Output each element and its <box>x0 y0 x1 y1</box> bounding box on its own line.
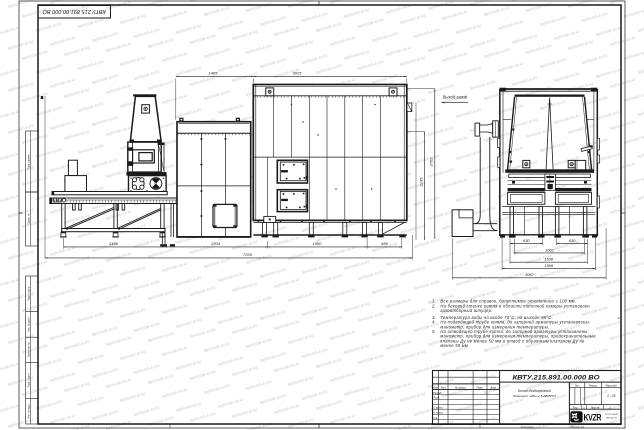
svg-text:teplostab-kv.kz: teplostab-kv.kz <box>497 271 524 283</box>
svg-text:teplostab-kv.kz: teplostab-kv.kz <box>609 119 636 131</box>
svg-text:teplostab-kv.kz: teplostab-kv.kz <box>35 147 62 159</box>
svg-text:teplostab-kv.kz: teplostab-kv.kz <box>511 411 538 423</box>
svg-text:7200: 7200 <box>243 252 253 257</box>
svg-text:teplostab-kv.kz: teplostab-kv.kz <box>525 1 552 13</box>
svg-text:КВТУ.215.891.00.000 ВО: КВТУ.215.891.00.000 ВО <box>513 375 600 382</box>
svg-text:teplostab-kv.kz: teplostab-kv.kz <box>637 399 644 411</box>
svg-text:teplostab-kv.kz: teplostab-kv.kz <box>287 249 314 261</box>
svg-text:teplostab-kv.kz: teplostab-kv.kz <box>7 81 34 93</box>
svg-text:teplostab-kv.kz: teplostab-kv.kz <box>175 275 202 287</box>
svg-text:teplostab-kv.kz: teplostab-kv.kz <box>287 375 314 387</box>
svg-text:teplostab-kv.kz: teplostab-kv.kz <box>623 343 644 355</box>
svg-text:teplostab-kv.kz: teplostab-kv.kz <box>0 25 20 37</box>
svg-text:teplostab-kv.kz: teplostab-kv.kz <box>105 335 132 347</box>
svg-text:teplostab-kv.kz: teplostab-kv.kz <box>133 363 160 375</box>
svg-text:teplostab-kv.kz: teplostab-kv.kz <box>217 355 244 367</box>
svg-text:teplostab-kv.kz: teplostab-kv.kz <box>105 41 132 53</box>
svg-text:Котел Водогрейный: Котел Водогрейный <box>518 389 551 393</box>
svg-text:teplostab-kv.kz: teplostab-kv.kz <box>399 391 426 403</box>
svg-text:teplostab-kv.kz: teplostab-kv.kz <box>63 45 90 57</box>
svg-text:А: А <box>618 316 620 320</box>
svg-text:teplostab-kv.kz: teplostab-kv.kz <box>245 421 272 430</box>
svg-text:teplostab-kv.kz: teplostab-kv.kz <box>273 277 300 289</box>
svg-text:teplostab-kv.kz: teplostab-kv.kz <box>371 325 398 337</box>
svg-text:teplostab-kv.kz: teplostab-kv.kz <box>595 361 622 373</box>
svg-text:teplostab-kv.kz: teplostab-kv.kz <box>595 235 622 247</box>
svg-text:teplostab-kv.kz: teplostab-kv.kz <box>623 7 644 19</box>
svg-text:teplostab-kv.kz: teplostab-kv.kz <box>21 385 48 397</box>
svg-text:teplostab-kv.kz: teplostab-kv.kz <box>21 133 48 145</box>
svg-text:teplostab-kv.kz: teplostab-kv.kz <box>133 27 160 39</box>
svg-text:teplostab-kv.kz: teplostab-kv.kz <box>147 331 174 343</box>
svg-text:teplostab-kv.kz: teplostab-kv.kz <box>511 0 538 3</box>
svg-text:teplostab-kv.kz: teplostab-kv.kz <box>231 365 258 377</box>
svg-text:teplostab-kv.kz: teplostab-kv.kz <box>0 277 20 289</box>
svg-text:teplostab-kv.kz: teplostab-kv.kz <box>77 395 104 407</box>
svg-text:teplostab-kv.kz: teplostab-kv.kz <box>637 357 644 369</box>
svg-text:teplostab-kv.kz: teplostab-kv.kz <box>273 403 300 415</box>
svg-text:teplostab-kv.kz: teplostab-kv.kz <box>245 1 272 13</box>
svg-text:Масштаб: Масштаб <box>606 384 618 388</box>
svg-text:teplostab-kv.kz: teplostab-kv.kz <box>427 125 454 137</box>
svg-text:teplostab-kv.kz: teplostab-kv.kz <box>21 217 48 229</box>
svg-text:teplostab-kv.kz: teplostab-kv.kz <box>245 43 272 55</box>
svg-text:teplostab-kv.kz: teplostab-kv.kz <box>203 257 230 269</box>
svg-text:teplostab-kv.kz: teplostab-kv.kz <box>413 153 440 165</box>
svg-text:teplostab-kv.kz: teplostab-kv.kz <box>259 57 286 69</box>
svg-text:Масса: Масса <box>589 384 597 388</box>
svg-text:teplostab-kv.kz: teplostab-kv.kz <box>623 217 644 229</box>
svg-text:teplostab-kv.kz: teplostab-kv.kz <box>399 223 426 235</box>
svg-text:teplostab-kv.kz: teplostab-kv.kz <box>539 351 566 363</box>
svg-text:teplostab-kv.kz: teplostab-kv.kz <box>147 37 174 49</box>
svg-text:teplostab-kv.kz: teplostab-kv.kz <box>91 115 118 127</box>
svg-text:teplostab-kv.kz: teplostab-kv.kz <box>259 15 286 27</box>
svg-text:1: 1 <box>583 405 585 409</box>
svg-text:teplostab-kv.kz: teplostab-kv.kz <box>609 245 636 257</box>
svg-text:Подп.: Подп. <box>477 386 484 389</box>
svg-text:teplostab-kv.kz: teplostab-kv.kz <box>7 249 34 261</box>
svg-text:teplostab-kv.kz: teplostab-kv.kz <box>301 11 328 23</box>
svg-text:teplostab-kv.kz: teplostab-kv.kz <box>91 325 118 337</box>
svg-text:Изм.: Изм. <box>433 386 439 389</box>
svg-text:teplostab-kv.kz: teplostab-kv.kz <box>637 147 644 159</box>
svg-text:teplostab-kv.kz: teplostab-kv.kz <box>427 209 454 221</box>
svg-text:teplostab-kv.kz: teplostab-kv.kz <box>441 9 468 21</box>
svg-text:Т. контр.: Т. контр. <box>433 406 443 409</box>
svg-text:teplostab-kv.kz: teplostab-kv.kz <box>21 175 48 187</box>
svg-text:teplostab-kv.kz: teplostab-kv.kz <box>497 19 524 31</box>
svg-text:teplostab-kv.kz: teplostab-kv.kz <box>553 29 580 41</box>
svg-text:teplostab-kv.kz: teplostab-kv.kz <box>469 163 496 175</box>
svg-text:teplostab-kv.kz: teplostab-kv.kz <box>637 105 644 117</box>
svg-text:teplostab-kv.kz: teplostab-kv.kz <box>133 321 160 333</box>
svg-text:teplostab-kv.kz: teplostab-kv.kz <box>231 407 258 419</box>
svg-text:teplostab-kv.kz: teplostab-kv.kz <box>49 119 76 131</box>
svg-text:teplostab-kv.kz: teplostab-kv.kz <box>217 19 244 31</box>
svg-text:teplostab-kv.kz: teplostab-kv.kz <box>623 175 644 187</box>
svg-text:teplostab-kv.kz: teplostab-kv.kz <box>21 343 48 355</box>
svg-text:teplostab-kv.kz: teplostab-kv.kz <box>581 263 608 275</box>
svg-text:teplostab-kv.kz: teplostab-kv.kz <box>133 279 160 291</box>
svg-text:teplostab-kv.kz: teplostab-kv.kz <box>49 77 76 89</box>
svg-text:teplostab-kv.kz: teplostab-kv.kz <box>77 311 104 323</box>
svg-text:teplostab-kv.kz: teplostab-kv.kz <box>371 73 398 85</box>
svg-text:teplostab-kv.kz: teplostab-kv.kz <box>49 245 76 257</box>
svg-text:2135: 2135 <box>418 177 423 188</box>
svg-text:teplostab-kv.kz: teplostab-kv.kz <box>357 59 384 71</box>
svg-text:Выход газов: Выход газов <box>443 94 468 99</box>
svg-text:Пров.: Пров. <box>433 397 440 400</box>
svg-text:teplostab-kv.kz: teplostab-kv.kz <box>259 267 286 279</box>
svg-text:Heatexpert «КВт-2,5-ДВ(ВПУ): Heatexpert «КВт-2,5-ДВ(ВПУ) <box>513 394 556 398</box>
svg-text:teplostab-kv.kz: teplostab-kv.kz <box>315 357 342 369</box>
svg-text:1538: 1538 <box>544 257 554 262</box>
svg-text:2.: 2. <box>431 303 435 308</box>
svg-text:teplostab-kv.kz: teplostab-kv.kz <box>301 53 328 65</box>
svg-text:teplostab-kv.kz: teplostab-kv.kz <box>49 329 76 341</box>
svg-text:teplostab-kv.kz: teplostab-kv.kz <box>315 273 342 285</box>
svg-text:teplostab-kv.kz: teplostab-kv.kz <box>21 259 48 271</box>
svg-text:teplostab-kv.kz: teplostab-kv.kz <box>329 35 356 47</box>
svg-text:teplostab-kv.kz: teplostab-kv.kz <box>287 39 314 51</box>
svg-text:teplostab-kv.kz: teplostab-kv.kz <box>581 347 608 359</box>
svg-text:teplostab-kv.kz: teplostab-kv.kz <box>483 89 510 101</box>
svg-text:teplostab-kv.kz: teplostab-kv.kz <box>609 371 636 383</box>
svg-text:teplostab-kv.kz: teplostab-kv.kz <box>231 29 258 41</box>
svg-text:teplostab-kv.kz: teplostab-kv.kz <box>399 265 426 277</box>
svg-text:teplostab-kv.kz: teplostab-kv.kz <box>371 283 398 295</box>
svg-text:teplostab-kv.kz: teplostab-kv.kz <box>147 373 174 385</box>
svg-text:teplostab-kv.kz: teplostab-kv.kz <box>203 299 230 311</box>
svg-text:Справ. №: Справ. № <box>28 213 31 224</box>
svg-text:teplostab-kv.kz: teplostab-kv.kz <box>91 157 118 169</box>
svg-text:teplostab-kv.kz: teplostab-kv.kz <box>567 123 594 135</box>
svg-text:Копировал: Копировал <box>521 425 534 429</box>
svg-text:teplostab-kv.kz: teplostab-kv.kz <box>91 409 118 421</box>
svg-text:teplostab-kv.kz: teplostab-kv.kz <box>623 133 644 145</box>
svg-text:teplostab-kv.kz: teplostab-kv.kz <box>77 353 104 365</box>
svg-text:teplostab-kv.kz: teplostab-kv.kz <box>273 25 300 37</box>
svg-text:teplostab-kv.kz: teplostab-kv.kz <box>385 339 412 351</box>
svg-text:teplostab-kv.kz: teplostab-kv.kz <box>189 369 216 381</box>
svg-text:teplostab-kv.kz: teplostab-kv.kz <box>595 319 622 331</box>
svg-text:teplostab-kv.kz: teplostab-kv.kz <box>413 195 440 207</box>
svg-text:teplostab-kv.kz: teplostab-kv.kz <box>497 145 524 157</box>
svg-text:teplostab-kv.kz: teplostab-kv.kz <box>623 91 644 103</box>
svg-text:Лист: Лист <box>573 405 579 409</box>
svg-text:teplostab-kv.kz: teplostab-kv.kz <box>553 239 580 251</box>
svg-text:2034: 2034 <box>210 241 221 246</box>
svg-text:teplostab-kv.kz: teplostab-kv.kz <box>231 71 258 83</box>
svg-text:teplostab-kv.kz: teplostab-kv.kz <box>259 309 286 321</box>
svg-text:teplostab-kv.kz: teplostab-kv.kz <box>623 259 644 271</box>
svg-text:teplostab-kv.kz: teplostab-kv.kz <box>175 401 202 413</box>
svg-text:teplostab-kv.kz: teplostab-kv.kz <box>623 301 644 313</box>
svg-text:teplostab-kv.kz: teplostab-kv.kz <box>385 381 412 393</box>
svg-text:685: 685 <box>381 241 388 246</box>
svg-text:teplostab-kv.kz: teplostab-kv.kz <box>399 55 426 67</box>
svg-text:teplostab-kv.kz: teplostab-kv.kz <box>371 409 398 421</box>
svg-text:teplostab-kv.kz: teplostab-kv.kz <box>189 327 216 339</box>
svg-text:teplostab-kv.kz: teplostab-kv.kz <box>217 61 244 73</box>
svg-text:teplostab-kv.kz: teplostab-kv.kz <box>427 83 454 95</box>
svg-text:Формат А2: Формат А2 <box>571 425 585 429</box>
svg-text:teplostab-kv.kz: teplostab-kv.kz <box>357 17 384 29</box>
svg-text:teplostab-kv.kz: teplostab-kv.kz <box>175 107 202 119</box>
svg-text:teplostab-kv.kz: teplostab-kv.kz <box>259 393 286 405</box>
svg-text:teplostab-kv.kz: teplostab-kv.kz <box>49 35 76 47</box>
svg-text:teplostab-kv.kz: teplostab-kv.kz <box>105 251 132 263</box>
svg-text:teplostab-kv.kz: teplostab-kv.kz <box>357 395 384 407</box>
svg-text:teplostab-kv.kz: teplostab-kv.kz <box>413 321 440 333</box>
svg-text:teplostab-kv.kz: teplostab-kv.kz <box>609 161 636 173</box>
svg-text:teplostab-kv.kz: teplostab-kv.kz <box>469 247 496 259</box>
svg-text:teplostab-kv.kz: teplostab-kv.kz <box>0 319 20 331</box>
svg-text:teplostab-kv.kz: teplostab-kv.kz <box>7 39 34 51</box>
svg-text:teplostab-kv.kz: teplostab-kv.kz <box>0 109 20 121</box>
svg-text:teplostab-kv.kz: teplostab-kv.kz <box>105 125 132 137</box>
svg-text:teplostab-kv.kz: teplostab-kv.kz <box>161 345 188 357</box>
svg-text:teplostab-kv.kz: teplostab-kv.kz <box>63 87 90 99</box>
svg-text:ЗАВОД РТИ: ЗАВОД РТИ <box>606 417 618 420</box>
svg-text:teplostab-kv.kz: teplostab-kv.kz <box>581 137 608 149</box>
svg-text:teplostab-kv.kz: teplostab-kv.kz <box>427 41 454 53</box>
svg-text:teplostab-kv.kz: teplostab-kv.kz <box>35 273 62 285</box>
svg-text:5.: 5. <box>432 329 435 334</box>
svg-text:teplostab-kv.kz: teplostab-kv.kz <box>441 177 468 189</box>
svg-text:teplostab-kv.kz: teplostab-kv.kz <box>63 255 90 267</box>
svg-text:teplostab-kv.kz: teplostab-kv.kz <box>637 63 644 75</box>
svg-text:teplostab-kv.kz: teplostab-kv.kz <box>497 103 524 115</box>
svg-text:teplostab-kv.kz: teplostab-kv.kz <box>609 287 636 299</box>
svg-text:teplostab-kv.kz: teplostab-kv.kz <box>189 411 216 423</box>
svg-text:teplostab-kv.kz: teplostab-kv.kz <box>63 381 90 393</box>
svg-text:teplostab-kv.kz: teplostab-kv.kz <box>329 371 356 383</box>
svg-text:teplostab-kv.kz: teplostab-kv.kz <box>63 129 90 141</box>
svg-text:teplostab-kv.kz: teplostab-kv.kz <box>217 397 244 409</box>
svg-text:teplostab-kv.kz: teplostab-kv.kz <box>357 353 384 365</box>
svg-text:teplostab-kv.kz: teplostab-kv.kz <box>637 189 644 201</box>
svg-text:teplostab-kv.kz: teplostab-kv.kz <box>203 383 230 395</box>
svg-text:teplostab-kv.kz: teplostab-kv.kz <box>0 193 20 205</box>
svg-text:teplostab-kv.kz: teplostab-kv.kz <box>35 315 62 327</box>
svg-text:teplostab-kv.kz: teplostab-kv.kz <box>287 291 314 303</box>
svg-text:teplostab-kv.kz: teplostab-kv.kz <box>637 231 644 243</box>
svg-text:teplostab-kv.kz: teplostab-kv.kz <box>105 209 132 221</box>
svg-text:Инв. № дубл.: Инв. № дубл. <box>28 317 31 332</box>
svg-text:Дата: Дата <box>491 386 497 389</box>
svg-text:1906: 1906 <box>544 263 554 268</box>
svg-text:teplostab-kv.kz: teplostab-kv.kz <box>567 249 594 261</box>
svg-text:teplostab-kv.kz: teplostab-kv.kz <box>0 151 20 163</box>
svg-text:teplostab-kv.kz: teplostab-kv.kz <box>497 61 524 73</box>
svg-text:teplostab-kv.kz: teplostab-kv.kz <box>119 13 146 25</box>
svg-text:teplostab-kv.kz: teplostab-kv.kz <box>133 69 160 81</box>
svg-text:teplostab-kv.kz: teplostab-kv.kz <box>343 259 370 271</box>
svg-text:teplostab-kv.kz: teplostab-kv.kz <box>595 25 622 37</box>
svg-text:teplostab-kv.kz: teplostab-kv.kz <box>119 55 146 67</box>
svg-text:teplostab-kv.kz: teplostab-kv.kz <box>315 21 342 33</box>
svg-text:teplostab-kv.kz: teplostab-kv.kz <box>273 319 300 331</box>
svg-text:teplostab-kv.kz: teplostab-kv.kz <box>161 261 188 273</box>
svg-text:teplostab-kv.kz: teplostab-kv.kz <box>511 33 538 45</box>
svg-text:teplostab-kv.kz: teplostab-kv.kz <box>455 191 482 203</box>
svg-text:teplostab-kv.kz: teplostab-kv.kz <box>455 65 482 77</box>
svg-text:teplostab-kv.kz: teplostab-kv.kz <box>189 33 216 45</box>
svg-text:teplostab-kv.kz: teplostab-kv.kz <box>203 47 230 59</box>
svg-text:teplostab-kv.kz: teplostab-kv.kz <box>595 277 622 289</box>
svg-text:Разраб.: Разраб. <box>433 392 442 395</box>
svg-text:teplostab-kv.kz: teplostab-kv.kz <box>581 53 608 65</box>
svg-text:teplostab-kv.kz: teplostab-kv.kz <box>385 45 412 57</box>
svg-text:teplostab-kv.kz: teplostab-kv.kz <box>119 391 146 403</box>
svg-text:teplostab-kv.kz: teplostab-kv.kz <box>455 275 482 287</box>
svg-text:Лист: Лист <box>441 386 447 389</box>
svg-text:teplostab-kv.kz: teplostab-kv.kz <box>483 5 510 17</box>
svg-text:teplostab-kv.kz: teplostab-kv.kz <box>455 149 482 161</box>
svg-text:teplostab-kv.kz: teplostab-kv.kz <box>329 329 356 341</box>
svg-text:teplostab-kv.kz: teplostab-kv.kz <box>21 49 48 61</box>
svg-text:teplostab-kv.kz: teplostab-kv.kz <box>175 65 202 77</box>
svg-text:teplostab-kv.kz: teplostab-kv.kz <box>539 57 566 69</box>
svg-text:teplostab-kv.kz: teplostab-kv.kz <box>217 313 244 325</box>
svg-text:teplostab-kv.kz: teplostab-kv.kz <box>343 343 370 355</box>
svg-text:KVZR: KVZR <box>584 413 602 424</box>
svg-text:teplostab-kv.kz: teplostab-kv.kz <box>189 0 216 3</box>
svg-text:teplostab-kv.kz: teplostab-kv.kz <box>245 379 272 391</box>
svg-text:1950: 1950 <box>313 241 323 246</box>
svg-text:teplostab-kv.kz: teplostab-kv.kz <box>175 23 202 35</box>
svg-text:teplostab-kv.kz: teplostab-kv.kz <box>483 47 510 59</box>
svg-text:Инв. № подл.: Инв. № подл. <box>28 403 31 418</box>
svg-text:teplostab-kv.kz: teplostab-kv.kz <box>539 99 566 111</box>
svg-text:teplostab-kv.kz: teplostab-kv.kz <box>441 51 468 63</box>
svg-text:teplostab-kv.kz: teplostab-kv.kz <box>77 17 104 29</box>
svg-text:teplostab-kv.kz: teplostab-kv.kz <box>581 221 608 233</box>
svg-text:teplostab-kv.kz: teplostab-kv.kz <box>119 265 146 277</box>
svg-text:teplostab-kv.kz: teplostab-kv.kz <box>511 117 538 129</box>
svg-text:teplostab-kv.kz: teplostab-kv.kz <box>455 23 482 35</box>
svg-text:teplostab-kv.kz: teplostab-kv.kz <box>553 281 580 293</box>
svg-text:Подп. и дата: Подп. и дата <box>28 286 31 301</box>
svg-text:teplostab-kv.kz: teplostab-kv.kz <box>7 123 34 135</box>
svg-text:teplostab-kv.kz: teplostab-kv.kz <box>595 67 622 79</box>
svg-text:teplostab-kv.kz: teplostab-kv.kz <box>231 323 258 335</box>
svg-text:КОТЕЛЬНЫЙ: КОТЕЛЬНЫЙ <box>605 413 618 416</box>
svg-text:teplostab-kv.kz: teplostab-kv.kz <box>343 385 370 397</box>
svg-text:1460: 1460 <box>109 241 119 246</box>
svg-text:teplostab-kv.kz: teplostab-kv.kz <box>77 269 104 281</box>
svg-text:teplostab-kv.kz: teplostab-kv.kz <box>35 357 62 369</box>
svg-text:teplostab-kv.kz: teplostab-kv.kz <box>343 7 370 19</box>
svg-text:teplostab-kv.kz: teplostab-kv.kz <box>539 15 566 27</box>
svg-text:Перв. примен.: Перв. примен. <box>28 153 31 169</box>
svg-text:teplostab-kv.kz: teplostab-kv.kz <box>357 311 384 323</box>
svg-text:teplostab-kv.kz: teplostab-kv.kz <box>637 315 644 327</box>
svg-text:teplostab-kv.kz: teplostab-kv.kz <box>567 39 594 51</box>
svg-text:teplostab-kv.kz: teplostab-kv.kz <box>217 103 244 115</box>
svg-text:1062: 1062 <box>545 247 555 252</box>
svg-text:teplostab-kv.kz: teplostab-kv.kz <box>189 285 216 297</box>
svg-text:teplostab-kv.kz: teplostab-kv.kz <box>119 307 146 319</box>
svg-text:teplostab-kv.kz: teplostab-kv.kz <box>637 21 644 33</box>
svg-text:teplostab-kv.kz: teplostab-kv.kz <box>119 349 146 361</box>
svg-text:Утв.: Утв. <box>433 417 438 420</box>
svg-text:teplostab-kv.kz: teplostab-kv.kz <box>49 287 76 299</box>
svg-text:teplostab-kv.kz: teplostab-kv.kz <box>609 329 636 341</box>
svg-text:teplostab-kv.kz: teplostab-kv.kz <box>455 359 482 371</box>
svg-text:Листов: Листов <box>591 405 600 409</box>
svg-text:teplostab-kv.kz: teplostab-kv.kz <box>77 143 104 155</box>
svg-text:teplostab-kv.kz: teplostab-kv.kz <box>413 363 440 375</box>
svg-text:teplostab-kv.kz: teplostab-kv.kz <box>567 207 594 219</box>
svg-text:teplostab-kv.kz: teplostab-kv.kz <box>147 289 174 301</box>
svg-text:teplostab-kv.kz: teplostab-kv.kz <box>301 347 328 359</box>
svg-text:teplostab-kv.kz: teplostab-kv.kz <box>217 271 244 283</box>
svg-text:teplostab-kv.kz: teplostab-kv.kz <box>399 307 426 319</box>
svg-text:teplostab-kv.kz: teplostab-kv.kz <box>371 31 398 43</box>
svg-text:1485: 1485 <box>209 71 219 76</box>
svg-text:teplostab-kv.kz: teplostab-kv.kz <box>147 79 174 91</box>
svg-text:teplostab-kv.kz: teplostab-kv.kz <box>49 203 76 215</box>
svg-text:teplostab-kv.kz: teplostab-kv.kz <box>91 367 118 379</box>
svg-text:teplostab-kv.kz: teplostab-kv.kz <box>231 239 258 251</box>
svg-text:1 : 25: 1 : 25 <box>607 394 616 398</box>
svg-text:teplostab-kv.kz: teplostab-kv.kz <box>427 251 454 263</box>
svg-text:teplostab-kv.kz: teplostab-kv.kz <box>161 387 188 399</box>
svg-text:teplostab-kv.kz: teplostab-kv.kz <box>469 79 496 91</box>
svg-text:teplostab-kv.kz: teplostab-kv.kz <box>175 317 202 329</box>
svg-text:Н. контр.: Н. контр. <box>433 412 444 415</box>
svg-text:teplostab-kv.kz: teplostab-kv.kz <box>413 279 440 291</box>
svg-text:3052: 3052 <box>525 272 535 277</box>
svg-text:teplostab-kv.kz: teplostab-kv.kz <box>147 247 174 259</box>
svg-text:teplostab-kv.kz: teplostab-kv.kz <box>413 69 440 81</box>
svg-text:teplostab-kv.kz: teplostab-kv.kz <box>0 67 20 79</box>
svg-text:teplostab-kv.kz: teplostab-kv.kz <box>77 59 104 71</box>
svg-text:teplostab-kv.kz: teplostab-kv.kz <box>245 295 272 307</box>
svg-text:teplostab-kv.kz: teplostab-kv.kz <box>301 305 328 317</box>
svg-text:teplostab-kv.kz: teplostab-kv.kz <box>315 63 342 75</box>
svg-text:teplostab-kv.kz: teplostab-kv.kz <box>49 371 76 383</box>
svg-text:teplostab-kv.kz: teplostab-kv.kz <box>525 43 552 55</box>
svg-text:teplostab-kv.kz: teplostab-kv.kz <box>63 297 90 309</box>
svg-text:teplostab-kv.kz: teplostab-kv.kz <box>35 63 62 75</box>
svg-text:teplostab-kv.kz: teplostab-kv.kz <box>91 283 118 295</box>
svg-text:teplostab-kv.kz: teplostab-kv.kz <box>161 9 188 21</box>
svg-text:teplostab-kv.kz: teplostab-kv.kz <box>35 21 62 33</box>
svg-text:teplostab-kv.kz: teplostab-kv.kz <box>343 49 370 61</box>
svg-text:teplostab-kv.kz: teplostab-kv.kz <box>77 101 104 113</box>
svg-text:teplostab-kv.kz: teplostab-kv.kz <box>245 337 272 349</box>
svg-text:teplostab-kv.kz: teplostab-kv.kz <box>203 341 230 353</box>
svg-text:teplostab-kv.kz: teplostab-kv.kz <box>329 287 356 299</box>
svg-text:teplostab-kv.kz: teplostab-kv.kz <box>161 303 188 315</box>
svg-text:teplostab-kv.kz: teplostab-kv.kz <box>483 257 510 269</box>
svg-text:teplostab-kv.kz: teplostab-kv.kz <box>441 261 468 273</box>
svg-text:Взам. инв. №: Взам. инв. № <box>28 342 31 357</box>
svg-text:teplostab-kv.kz: teplostab-kv.kz <box>399 13 426 25</box>
svg-text:teplostab-kv.kz: teplostab-kv.kz <box>511 285 538 297</box>
svg-text:teplostab-kv.kz: teplostab-kv.kz <box>35 399 62 411</box>
svg-text:4.: 4. <box>432 320 435 325</box>
svg-text:teplostab-kv.kz: teplostab-kv.kz <box>343 301 370 313</box>
svg-text:teplostab-kv.kz: teplostab-kv.kz <box>287 417 314 429</box>
svg-text:teplostab-kv.kz: teplostab-kv.kz <box>455 401 482 413</box>
svg-text:teplostab-kv.kz: teplostab-kv.kz <box>553 113 580 125</box>
svg-text:2702: 2702 <box>429 157 434 168</box>
